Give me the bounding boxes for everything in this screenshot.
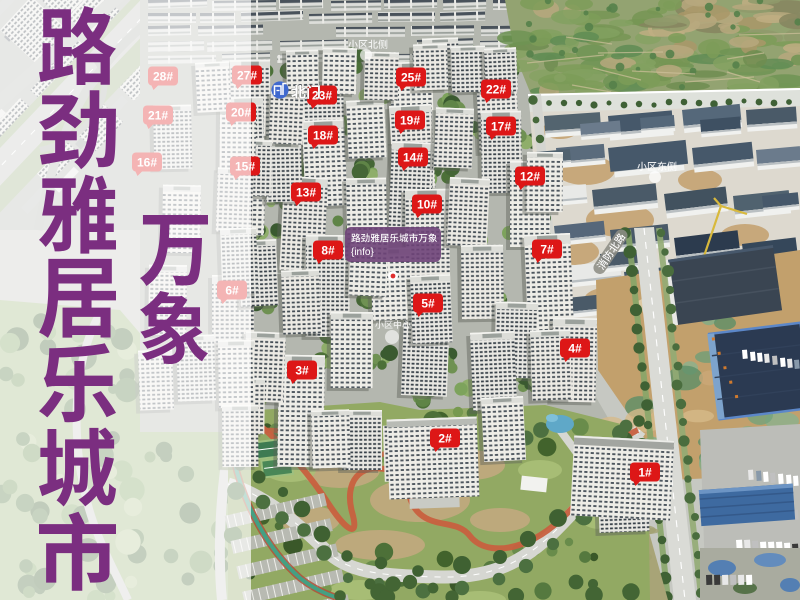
svg-text:17#: 17# bbox=[491, 120, 511, 134]
svg-text:18#: 18# bbox=[313, 129, 333, 143]
svg-text:10#: 10# bbox=[417, 198, 437, 212]
svg-text:4#: 4# bbox=[568, 342, 582, 356]
svg-text:5#: 5# bbox=[421, 297, 435, 311]
svg-text:13#: 13# bbox=[296, 186, 316, 200]
svg-text:8#: 8# bbox=[321, 244, 335, 258]
svg-text:3#: 3# bbox=[295, 364, 309, 378]
svg-text:23#: 23# bbox=[312, 89, 332, 103]
svg-text:1#: 1# bbox=[638, 466, 652, 480]
svg-text:{info}: {info} bbox=[351, 247, 374, 258]
svg-text:7#: 7# bbox=[540, 243, 554, 257]
svg-text:19#: 19# bbox=[400, 114, 420, 128]
svg-text:25#: 25# bbox=[401, 71, 421, 85]
svg-text:22#: 22# bbox=[486, 83, 506, 97]
svg-text:12#: 12# bbox=[520, 170, 540, 184]
svg-text:2#: 2# bbox=[438, 432, 452, 446]
svg-text:14#: 14# bbox=[403, 151, 423, 165]
